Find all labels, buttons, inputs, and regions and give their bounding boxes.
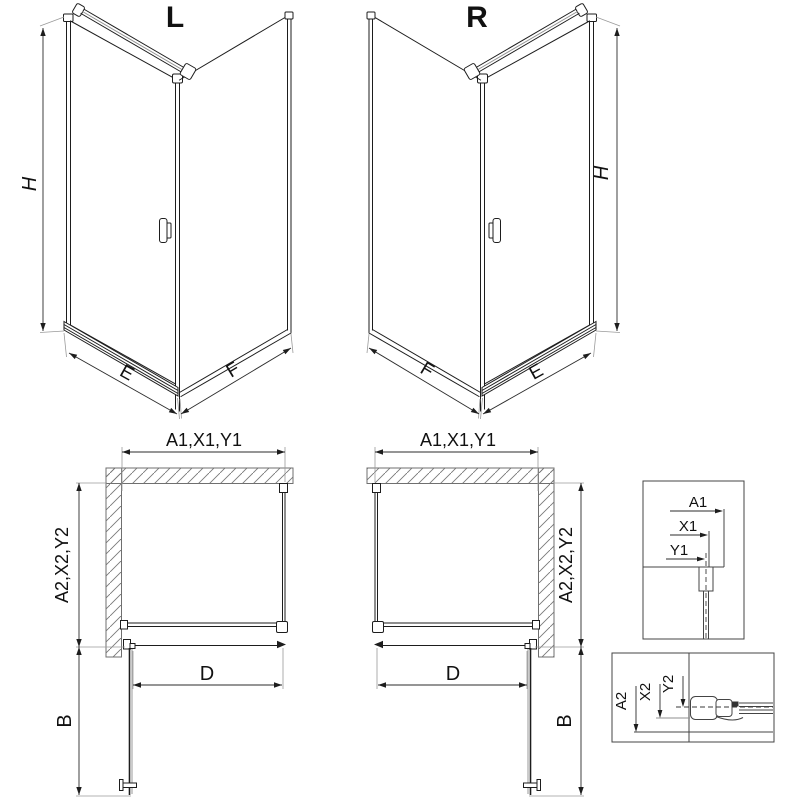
detail-x2-label: X2 xyxy=(637,683,654,701)
side-wall xyxy=(106,468,122,657)
iso-view-left xyxy=(40,3,293,419)
detail-y2-label: Y2 xyxy=(660,675,677,693)
back-wall xyxy=(367,468,554,484)
detail-a1-label: A1 xyxy=(689,494,707,511)
technical-drawing-page: L R H H E F F E A1,X1,Y1 A2,X2,Y2 D B A1… xyxy=(0,0,800,800)
plan-depth-dim-right: A2,X2,Y2 xyxy=(556,527,576,603)
door-swing-dim-right: B xyxy=(554,714,576,727)
plan-left-walls xyxy=(106,468,293,657)
door-swing-dim-left: B xyxy=(54,714,76,727)
variant-label-right: R xyxy=(466,1,488,34)
iso-view-right xyxy=(367,3,620,419)
detail-x1-label: X1 xyxy=(679,518,697,535)
plan-depth-dim-left: A2,X2,Y2 xyxy=(52,527,72,603)
hinge-body xyxy=(691,697,718,720)
plan-width-dim-left: A1,X1,Y1 xyxy=(166,430,242,450)
height-dim-label-left: H xyxy=(19,176,41,191)
entry-dim-left: D xyxy=(200,663,214,685)
detail-y1-label: Y1 xyxy=(670,542,688,559)
side-wall xyxy=(539,468,555,657)
detail-a2-label: A2 xyxy=(613,692,630,710)
back-wall xyxy=(106,468,293,484)
variant-label-left: L xyxy=(166,1,184,34)
plan-width-dim-right: A1,X1,Y1 xyxy=(420,430,496,450)
shower-enclosure-drawing: L R H H E F F E A1,X1,Y1 A2,X2,Y2 D B A1… xyxy=(0,0,800,800)
door-width-dim-right: E xyxy=(526,360,547,385)
entry-dim-right: D xyxy=(446,663,460,685)
height-dim-label-right: H xyxy=(591,165,613,180)
plan-right-walls xyxy=(367,468,554,657)
